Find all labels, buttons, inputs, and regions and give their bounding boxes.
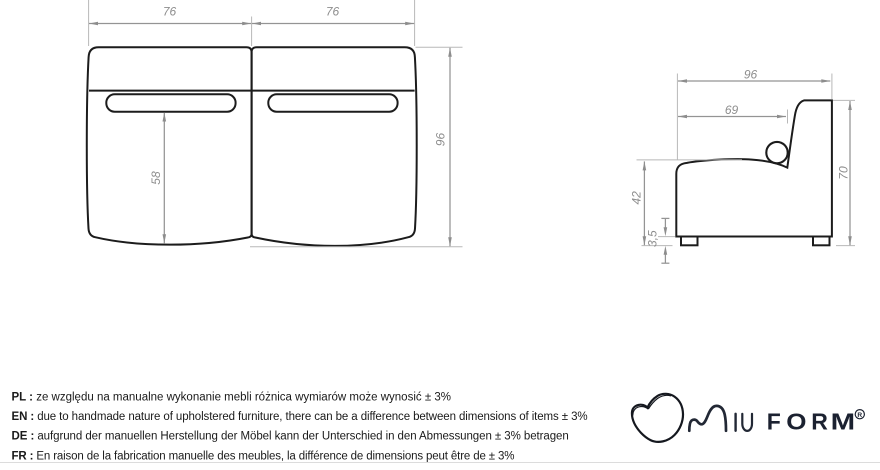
svg-text:M: M bbox=[831, 409, 856, 435]
svg-text:96: 96 bbox=[744, 68, 758, 82]
svg-text:76: 76 bbox=[326, 5, 340, 19]
svg-text:R: R bbox=[811, 409, 828, 435]
svg-text:76: 76 bbox=[163, 5, 177, 19]
svg-text:PL : ze względu na manualne wy: PL : ze względu na manualne wykonanie me… bbox=[12, 391, 451, 403]
svg-text:3,5: 3,5 bbox=[645, 230, 659, 247]
svg-text:FR : En raison de la fabricati: FR : En raison de la fabrication manuell… bbox=[12, 450, 515, 462]
svg-text:F: F bbox=[767, 409, 781, 435]
svg-text:96: 96 bbox=[434, 133, 448, 147]
svg-text:42: 42 bbox=[630, 191, 644, 205]
svg-text:O: O bbox=[786, 410, 806, 435]
svg-text:R: R bbox=[857, 412, 862, 419]
svg-text:EN : due to handmade nature of: EN : due to handmade nature of upholster… bbox=[12, 411, 588, 423]
svg-text:70: 70 bbox=[837, 166, 851, 180]
svg-text:58: 58 bbox=[149, 171, 163, 185]
svg-text:DE : aufgrund der manuellen He: DE : aufgrund der manuellen Herstellung … bbox=[12, 431, 569, 443]
svg-text:69: 69 bbox=[725, 103, 739, 117]
